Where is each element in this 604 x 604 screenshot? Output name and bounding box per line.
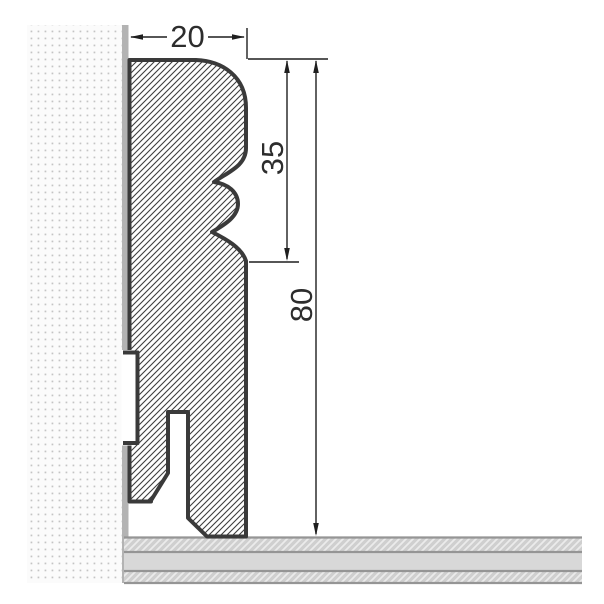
floor-bottom-screed-layer — [124, 572, 582, 582]
dim-total-height-label: 80 — [284, 288, 319, 322]
dim-upper-height-label: 35 — [255, 141, 290, 175]
technical-drawing-canvas: 20 35 80 — [0, 0, 604, 604]
floor-section — [124, 537, 582, 585]
dim-upper-height: 35 — [255, 60, 290, 261]
dim-total-height-arrow-top — [313, 60, 319, 73]
wall-section — [27, 25, 122, 583]
dim-upper-height-arrow-top — [284, 60, 290, 73]
dim-width-arrow-right — [232, 34, 245, 40]
skirting-profile-drawing: 20 35 80 — [0, 0, 604, 604]
dim-width-label: 20 — [170, 19, 204, 54]
floor-top-screed-layer — [124, 539, 582, 552]
dim-upper-height-arrow-bottom — [284, 248, 290, 261]
dim-width-arrow-left — [130, 34, 143, 40]
dim-total-height: 80 — [284, 60, 319, 536]
dim-total-height-arrow-bottom — [313, 523, 319, 536]
skirting-profile — [130, 60, 247, 537]
cable-notch-opening — [122, 350, 133, 446]
